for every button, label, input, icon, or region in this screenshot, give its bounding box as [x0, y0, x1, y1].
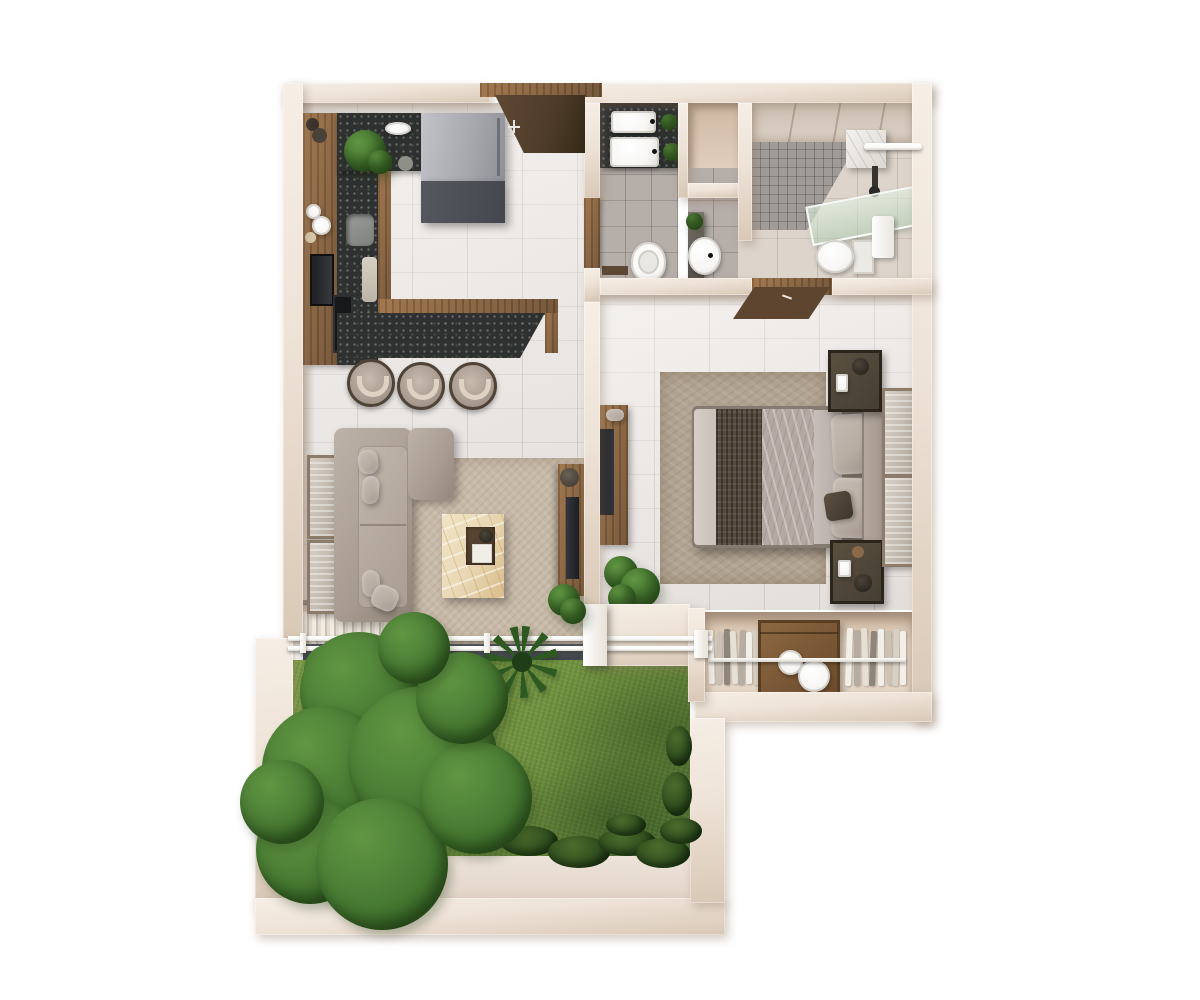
rail-end-post: [694, 630, 708, 658]
wall-garden-east: [690, 718, 725, 903]
nightstand-south-card: [838, 560, 851, 577]
guest-faucet-1: [650, 119, 655, 124]
round-box-2: [798, 660, 830, 692]
hedge-5: [606, 814, 646, 836]
kitchen-plant-leaf: [368, 150, 392, 174]
built-in-oven: [310, 254, 334, 306]
bed-duvet: [762, 409, 814, 545]
palm-center: [512, 652, 532, 672]
main-bath-wall-tiles: [752, 103, 912, 145]
bed-knit-throw: [716, 409, 762, 545]
powder-plant: [686, 213, 703, 230]
sofa-chaise: [408, 428, 454, 500]
counter-dish: [385, 122, 411, 135]
entry-door-handle-v: [513, 120, 515, 133]
guest-faucet-2: [652, 149, 657, 154]
bar-stool-3: [449, 362, 497, 410]
floor-plan-canvas: [0, 0, 1200, 1000]
tray-plant: [479, 529, 493, 543]
shower-towel-bar: [864, 143, 922, 150]
bed-sheet-edge: [694, 409, 718, 545]
wall-top-east: [585, 83, 932, 103]
guest-toilet-seat: [638, 250, 659, 274]
hedge-8: [666, 726, 692, 766]
kitchen-sink: [346, 214, 374, 246]
floor-speaker: [560, 468, 579, 487]
wall-corridor-divider-south: [584, 268, 600, 302]
wall-powder-mainbath: [738, 103, 752, 241]
tray-napkins: [472, 544, 492, 563]
main-toilet-bowl: [816, 240, 854, 273]
breakfast-bar-counter: [337, 313, 545, 358]
wall-garden-south: [255, 898, 725, 935]
wall-guestbath-niche: [678, 103, 688, 198]
wall-east: [912, 83, 932, 722]
refrigerator-handle: [497, 118, 500, 176]
tree-canopy-6: [420, 742, 532, 854]
wall-west: [283, 83, 303, 643]
wall-wardrobe-south: [695, 692, 932, 722]
wall-plate-2: [312, 216, 331, 235]
wall-bedroom-north-west: [600, 278, 752, 295]
entry-lintel: [480, 83, 602, 97]
living-tv: [566, 497, 579, 579]
bar-stool-2: [397, 362, 445, 410]
deck-shrub-2: [560, 598, 586, 624]
wall-living-bedroom: [584, 302, 600, 614]
sofa-pillow-2: [361, 475, 380, 504]
nightstand-north-lamp: [852, 358, 869, 375]
rail-post-1: [300, 633, 306, 653]
dresser-lid-line: [760, 632, 838, 634]
wall-bedroom-north-east: [832, 278, 932, 295]
storage-niche-floor: [688, 168, 738, 183]
tree-canopy-9: [240, 760, 324, 844]
powder-faucet: [708, 253, 713, 258]
wall-garden-north-east: [600, 604, 690, 666]
bedroom-tv: [600, 429, 614, 515]
nightstand-south-lamp: [854, 574, 872, 592]
kitchen-cabinet-face: [378, 171, 391, 303]
bar-stool-1: [347, 359, 395, 407]
bedroom-wall-art-2: [882, 475, 915, 567]
powder-washbasin: [688, 237, 721, 275]
nightstand-south-bowl: [852, 546, 864, 558]
guest-vanity-plant-1: [661, 114, 677, 130]
sofa-cushion-seam: [360, 524, 406, 526]
hedge-6: [660, 818, 702, 844]
guest-bath-door: [584, 198, 600, 268]
wall-corridor-divider: [584, 103, 600, 198]
bedroom-wall-art-1: [882, 388, 915, 477]
nightstand-north-clock: [836, 374, 848, 392]
refrigerator-base: [421, 181, 505, 223]
wall-plate-dark-2: [312, 128, 327, 143]
sofa-pillow-1: [357, 449, 379, 475]
console-decor: [606, 409, 624, 421]
deck-pillar: [583, 604, 607, 666]
wall-top-west: [283, 83, 490, 103]
wardrobe-rail: [708, 658, 906, 662]
main-toilet-tank: [852, 240, 874, 274]
bed-accent-cushion: [823, 490, 854, 522]
island-wood-cap: [545, 313, 558, 353]
bath-towel: [872, 216, 894, 258]
wall-plate-3: [305, 232, 316, 243]
cutting-board: [362, 257, 377, 302]
tree-canopy-8: [378, 612, 450, 684]
island-wood-face: [378, 299, 558, 315]
counter-pot: [398, 156, 413, 171]
guest-bath-mat: [602, 266, 628, 275]
wall-niche-south: [688, 183, 738, 198]
hedge-7: [662, 772, 692, 816]
refrigerator: [421, 113, 505, 181]
